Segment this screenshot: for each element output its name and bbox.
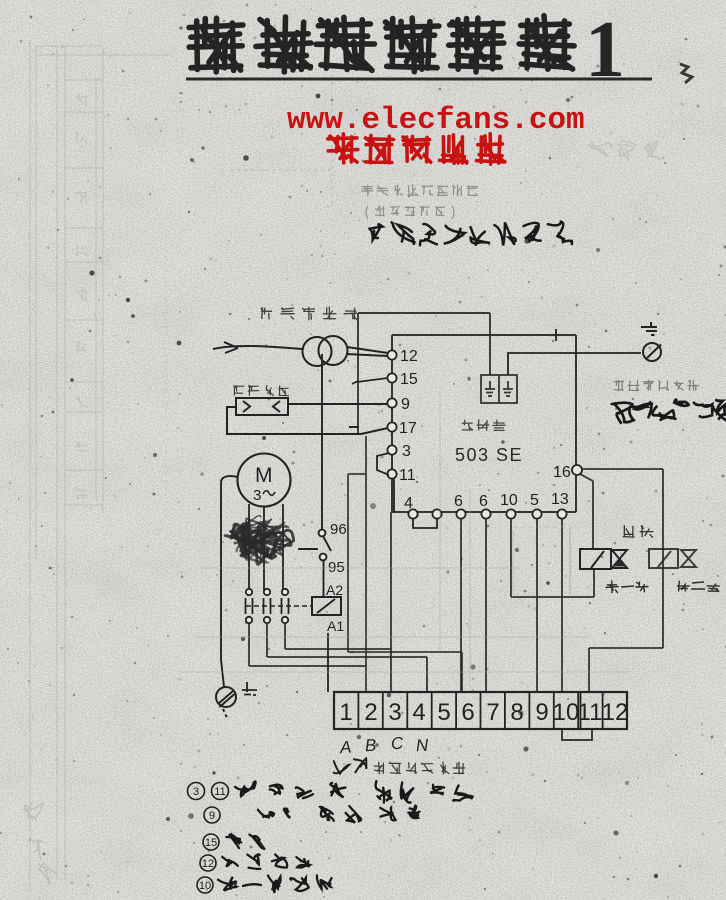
svg-text:17: 17 (399, 420, 417, 437)
svg-text:4: 4 (404, 495, 413, 512)
svg-text:16: 16 (553, 464, 571, 481)
svg-text:7: 7 (486, 699, 499, 726)
svg-text:5: 5 (530, 492, 539, 509)
svg-text:3: 3 (193, 786, 199, 798)
svg-text:N: N (415, 736, 429, 756)
svg-text:6: 6 (461, 699, 474, 726)
svg-text:9: 9 (209, 810, 215, 822)
svg-text:12: 12 (202, 858, 214, 870)
svg-text:1: 1 (339, 699, 352, 726)
svg-text:11: 11 (578, 699, 603, 726)
svg-text:11: 11 (399, 467, 416, 484)
svg-text:3: 3 (388, 699, 401, 726)
svg-text:96: 96 (330, 521, 347, 538)
svg-text:10: 10 (199, 880, 211, 892)
svg-text:2: 2 (364, 699, 377, 726)
svg-text:1: 1 (585, 6, 625, 94)
svg-text:www.elecfans.com: www.elecfans.com (287, 103, 585, 138)
svg-text:M: M (255, 464, 273, 487)
svg-text:15: 15 (205, 837, 217, 849)
svg-text:6: 6 (454, 493, 463, 510)
svg-text:A: A (338, 738, 352, 758)
svg-text:8: 8 (510, 699, 523, 726)
svg-text:C: C (390, 734, 404, 754)
svg-text:3: 3 (253, 487, 261, 504)
svg-text:3: 3 (402, 443, 411, 460)
svg-text:15: 15 (400, 371, 418, 388)
svg-text:A1: A1 (327, 618, 344, 634)
svg-text:9: 9 (401, 396, 410, 413)
svg-text:9: 9 (535, 699, 548, 726)
svg-text:11: 11 (214, 786, 225, 798)
svg-text:13: 13 (551, 491, 569, 508)
svg-text:10: 10 (500, 492, 518, 509)
svg-text:5: 5 (437, 699, 450, 726)
svg-text:6: 6 (479, 493, 488, 510)
svg-text:12: 12 (400, 348, 418, 365)
svg-text:12: 12 (602, 699, 629, 726)
svg-text:A2: A2 (326, 582, 343, 598)
svg-text:503 SE: 503 SE (455, 445, 523, 465)
svg-text:4: 4 (412, 699, 425, 726)
svg-text:10: 10 (553, 699, 580, 726)
svg-text:B: B (364, 736, 376, 756)
